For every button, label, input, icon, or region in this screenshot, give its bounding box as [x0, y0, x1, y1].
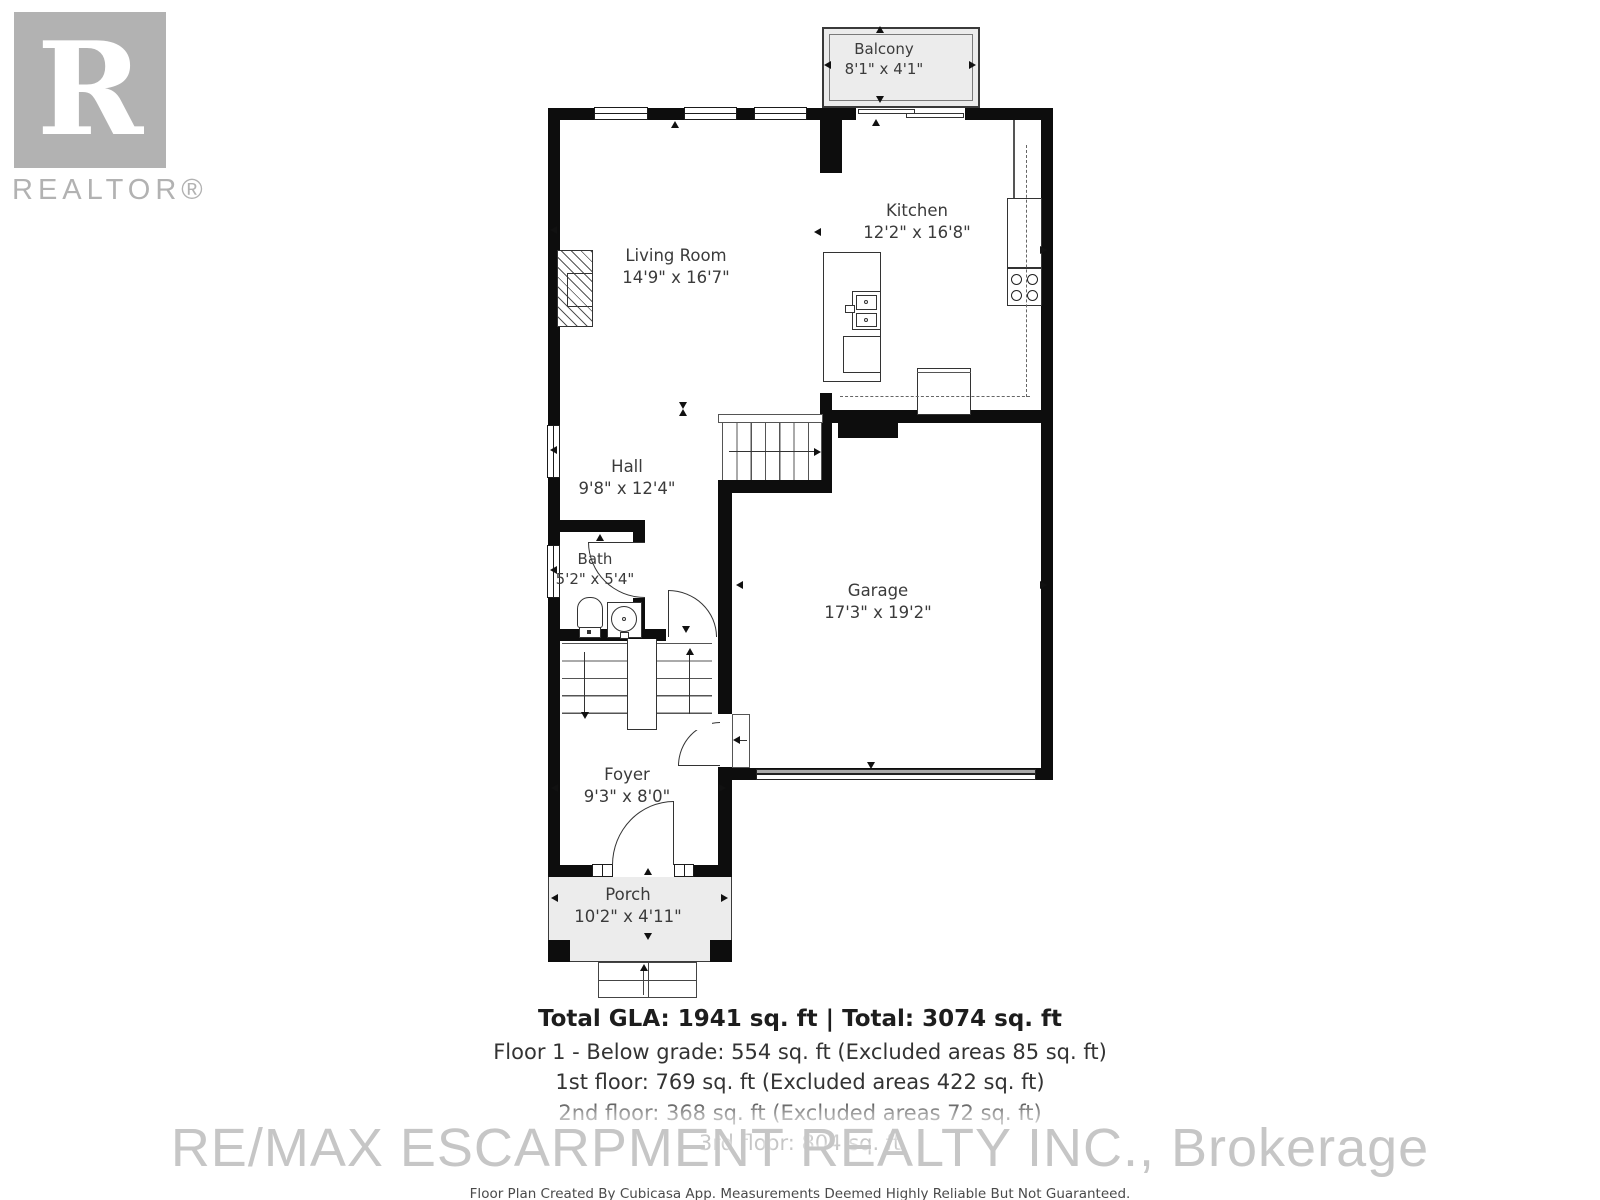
room-name: Foyer [584, 764, 671, 786]
wall [838, 423, 898, 438]
arrow-marker [824, 61, 831, 69]
wall [1041, 108, 1053, 780]
summary-title: Total GLA: 1941 sq. ft | Total: 3074 sq.… [0, 1006, 1600, 1032]
kitchen-island [917, 368, 971, 415]
arrow-marker [679, 402, 687, 409]
arrow-marker [550, 446, 557, 454]
room-name: Living Room [622, 245, 730, 267]
disclaimer-text: Floor Plan Created By Cubicasa App. Meas… [0, 1186, 1600, 1200]
stair-rail [627, 639, 657, 730]
room-dims: 12'2" x 16'8" [863, 222, 971, 244]
room-label-hall: Hall 9'8" x 12'4" [579, 456, 676, 500]
arrow-marker [969, 61, 976, 69]
arrow-marker [876, 96, 884, 103]
fireplace-inner [567, 273, 593, 307]
sink-drain [864, 318, 868, 322]
room-dims: 9'8" x 12'4" [579, 478, 676, 500]
room-label-kitchen: Kitchen 12'2" x 16'8" [863, 200, 971, 244]
wall [718, 480, 832, 493]
arrow-marker [1040, 246, 1047, 254]
porch-post [710, 940, 732, 962]
room-label-living-room: Living Room 14'9" x 16'7" [622, 245, 730, 289]
arrow-marker [550, 226, 557, 234]
room-label-bath: Bath 5'2" x 5'4" [556, 550, 635, 590]
window [592, 864, 613, 877]
burner [1027, 290, 1038, 301]
arrow-marker [640, 964, 648, 971]
door-arc [612, 801, 674, 865]
arrow-marker [733, 736, 740, 744]
window [754, 107, 807, 120]
wall [820, 118, 842, 173]
step-line [648, 962, 649, 998]
cabinet-dashed-line [1026, 145, 1027, 397]
arrow-marker [686, 648, 694, 655]
arrow-marker [551, 894, 558, 902]
step-arrow [643, 968, 644, 995]
arrow-marker [814, 448, 821, 456]
arrow-marker [682, 626, 690, 633]
room-dims: 5'2" x 5'4" [556, 570, 635, 590]
room-dims: 17'3" x 19'2" [824, 602, 932, 624]
room-dims: 14'9" x 16'7" [622, 267, 730, 289]
burner [1027, 274, 1038, 285]
stove [1007, 268, 1042, 306]
room-label-porch: Porch 10'2" x 4'11" [574, 884, 682, 928]
sink-drain [622, 617, 626, 621]
stair-direction-arrow [689, 654, 690, 714]
room-name: Balcony [845, 40, 924, 60]
sliding-door-panel [906, 113, 964, 118]
porch-post [548, 940, 570, 962]
realtor-logo-letter: R [37, 26, 143, 154]
island-line [917, 372, 971, 373]
arrow-marker [736, 581, 743, 589]
room-label-foyer: Foyer 9'3" x 8'0" [584, 764, 671, 808]
window [684, 107, 737, 120]
arrow-marker [679, 409, 687, 416]
wall [548, 108, 560, 877]
room-name: Bath [556, 550, 635, 570]
arrow-marker [551, 784, 558, 792]
summary-line: Floor 1 - Below grade: 554 sq. ft (Exclu… [0, 1041, 1600, 1063]
burner [1011, 274, 1022, 285]
wall [718, 480, 732, 877]
toilet-button [587, 630, 591, 634]
room-name: Porch [574, 884, 682, 906]
garage-entry-opening [718, 714, 732, 767]
arrow-marker [644, 933, 652, 940]
stair-direction-arrow [584, 652, 585, 714]
arrow-marker [814, 228, 821, 236]
room-dims: 9'3" x 8'0" [584, 786, 671, 808]
stair-direction-arrow [729, 451, 815, 452]
wall [548, 520, 645, 532]
arrow-marker [581, 712, 589, 719]
room-dims: 10'2" x 4'11" [574, 906, 682, 928]
cabinet-dashed-line [840, 396, 1030, 397]
faucet [845, 305, 855, 313]
arrow-marker [721, 894, 728, 902]
brokerage-watermark: RE/MAX ESCARPMENT REALTY INC., Brokerage [171, 1117, 1429, 1179]
arrow-marker [867, 762, 875, 769]
garage-door-track [756, 774, 1036, 780]
brokerage-watermark-band: RE/MAX ESCARPMENT REALTY INC., Brokerage [40, 1120, 1560, 1176]
room-name: Kitchen [863, 200, 971, 222]
dishwasher [843, 336, 881, 373]
arrow-marker [876, 26, 884, 33]
room-name: Garage [824, 580, 932, 602]
room-label-garage: Garage 17'3" x 19'2" [824, 580, 932, 624]
arrow-marker [719, 784, 726, 792]
floor-plan-page: R REALTOR® [0, 0, 1600, 1200]
cabinet-line [1013, 120, 1015, 198]
door-arc [668, 590, 717, 637]
arrow-marker [671, 121, 679, 128]
room-dims: 8'1" x 4'1" [845, 60, 924, 80]
faucet [620, 632, 629, 639]
summary-line: 1st floor: 769 sq. ft (Excluded areas 42… [0, 1071, 1600, 1093]
realtor-logo-icon: R [14, 12, 166, 168]
burner [1011, 290, 1022, 301]
realtor-logo-label: REALTOR® [12, 174, 242, 207]
room-name: Hall [579, 456, 676, 478]
sink-drain [864, 300, 868, 304]
arrow-marker [872, 119, 880, 126]
arrow-marker [644, 868, 652, 875]
room-label-balcony: Balcony 8'1" x 4'1" [845, 40, 924, 80]
fridge [1007, 198, 1042, 268]
arrow-marker [596, 534, 604, 541]
window [674, 864, 694, 877]
arrow-marker [1040, 581, 1047, 589]
toilet [577, 597, 603, 628]
stair-landing [718, 414, 823, 423]
window [594, 107, 648, 120]
